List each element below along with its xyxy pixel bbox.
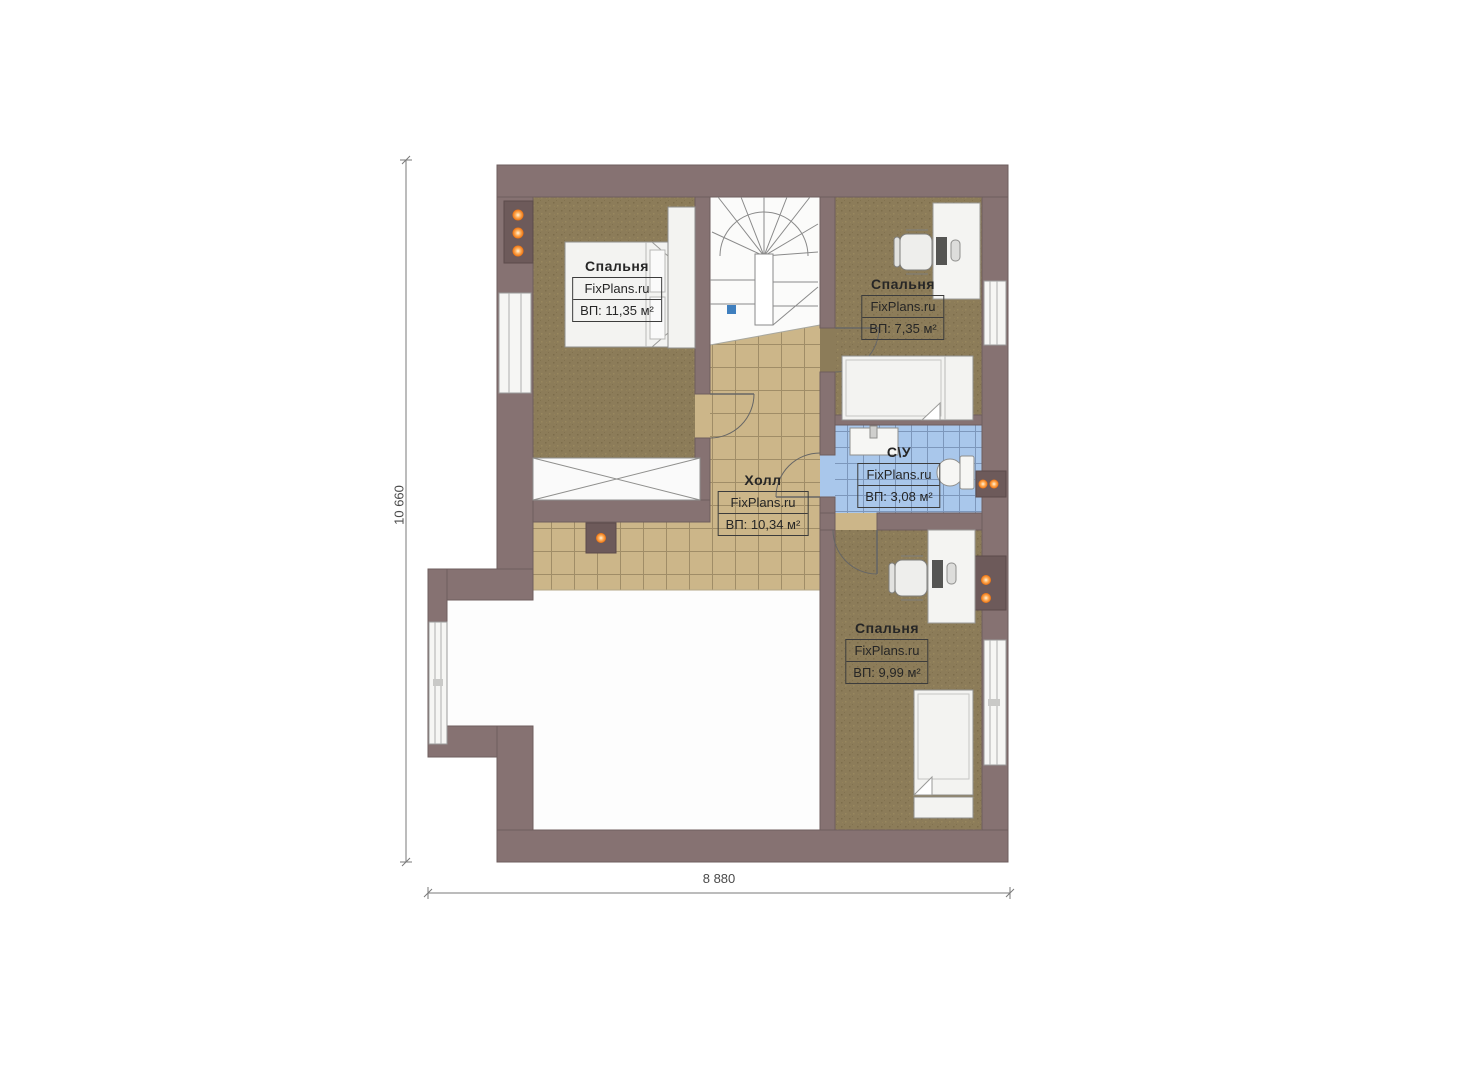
room-name: Спальня [845,620,928,636]
room-name: Спальня [861,276,944,292]
watermark-text: FixPlans.ru [719,492,808,514]
single-bed-icon [842,356,973,420]
dimension-vertical-label: 10 660 [392,485,407,525]
watermark-text: FixPlans.ru [862,296,943,318]
room-name: С\У [857,444,940,460]
wardrobe-icon [533,458,700,500]
room-name: Спальня [572,258,662,274]
room-area: ВП: 3,08 м² [858,486,939,507]
room-info-box: FixPlans.ru ВП: 3,08 м² [857,463,940,508]
floor-plan: Спальня FixPlans.ru ВП: 11,35 м² Спальня… [0,0,1474,1080]
window-right-top [984,281,1006,345]
room-label-bedroom-top-right: Спальня FixPlans.ru ВП: 7,35 м² [861,276,944,340]
room-area: ВП: 9,99 м² [846,662,927,683]
single-bed-icon-2 [914,690,973,818]
window-right-bottom [984,640,1006,765]
watermark-text: FixPlans.ru [858,464,939,486]
room-label-hall: Холл FixPlans.ru ВП: 10,34 м² [718,472,809,536]
window-bay [429,622,447,744]
room-label-bedroom-left: Спальня FixPlans.ru ВП: 11,35 м² [572,258,662,322]
room-info-box: FixPlans.ru ВП: 7,35 м² [861,295,944,340]
room-info-box: FixPlans.ru ВП: 10,34 м² [718,491,809,536]
room-label-bedroom-bottom: Спальня FixPlans.ru ВП: 9,99 м² [845,620,928,684]
room-area: ВП: 7,35 м² [862,318,943,339]
window-left [499,293,531,393]
closet-icon [668,207,695,348]
toilet-icon [937,456,974,489]
watermark-text: FixPlans.ru [573,278,661,300]
room-info-box: FixPlans.ru ВП: 9,99 м² [845,639,928,684]
room-area: ВП: 11,35 м² [573,300,661,321]
dimension-horizontal-label: 8 880 [703,871,736,886]
room-label-bathroom: С\У FixPlans.ru ВП: 3,08 м² [857,444,940,508]
room-info-box: FixPlans.ru ВП: 11,35 м² [572,277,662,322]
watermark-text: FixPlans.ru [846,640,927,662]
room-name: Холл [718,472,809,488]
floor-plan-svg [0,0,1474,1080]
room-area: ВП: 10,34 м² [719,514,808,535]
stair-marker [727,305,736,314]
